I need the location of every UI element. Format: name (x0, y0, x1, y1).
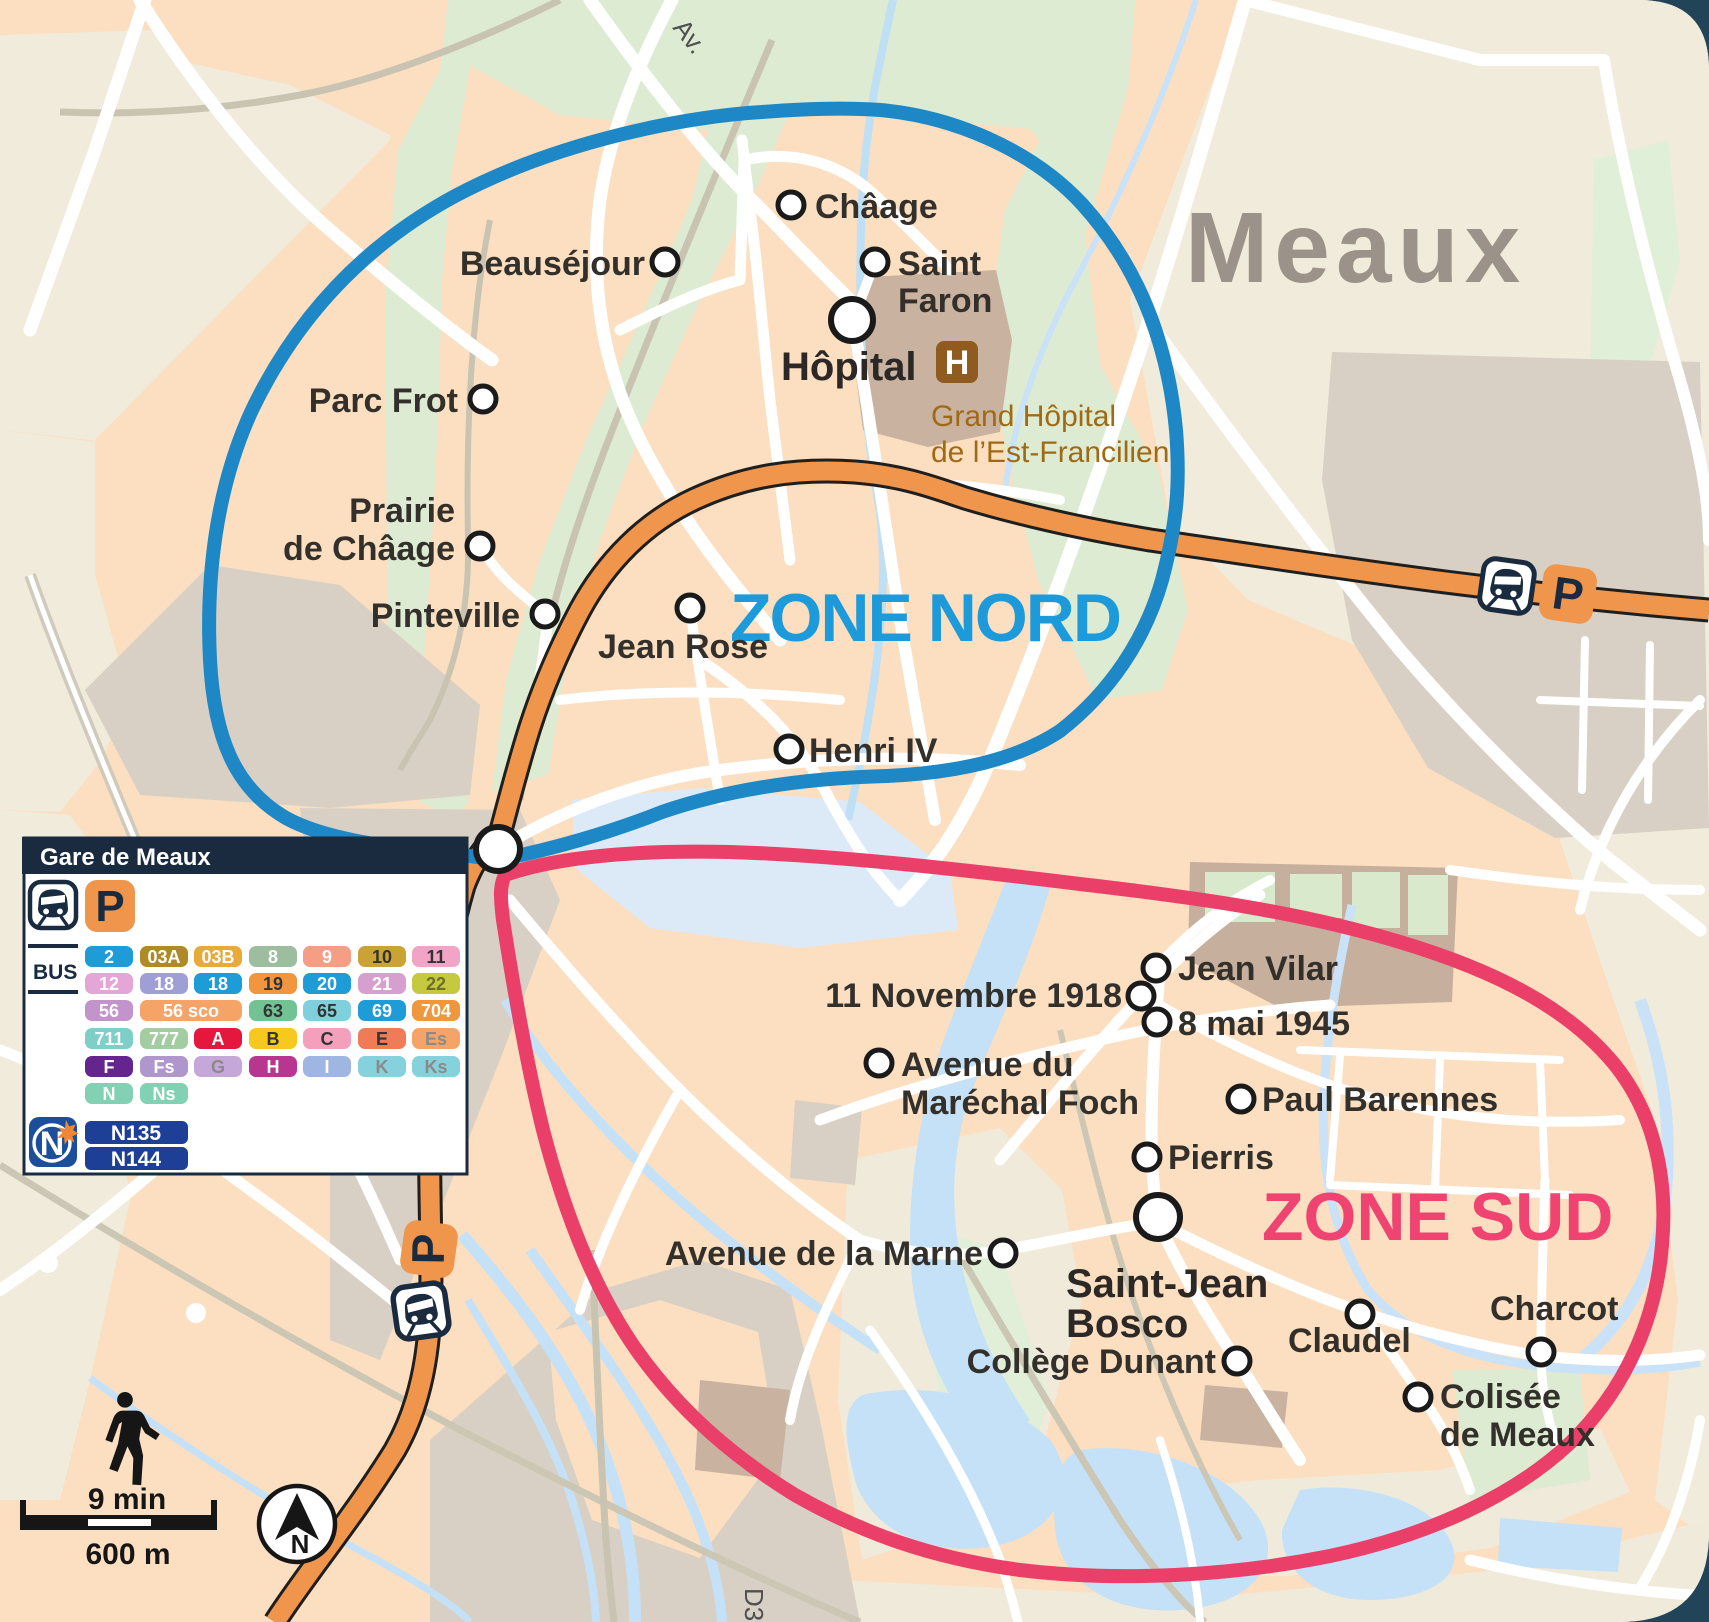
svg-text:Collège Dunant: Collège Dunant (967, 1343, 1216, 1381)
svg-text:Saint-Jean: Saint-Jean (1066, 1262, 1268, 1306)
svg-text:B: B (267, 1029, 280, 1049)
svg-text:de l’Est-Francilien: de l’Est-Francilien (931, 436, 1169, 469)
svg-text:03A: 03A (147, 947, 180, 967)
svg-text:Es: Es (425, 1029, 447, 1049)
svg-text:8: 8 (268, 947, 278, 967)
svg-text:Claudel: Claudel (1288, 1322, 1411, 1360)
svg-text:Paul Barennes: Paul Barennes (1262, 1081, 1498, 1119)
svg-text:N144: N144 (111, 1148, 162, 1171)
svg-text:2: 2 (104, 947, 114, 967)
svg-text:H: H (945, 344, 970, 382)
svg-text:Gare de Meaux: Gare de Meaux (40, 844, 211, 871)
svg-text:N: N (40, 1125, 65, 1163)
svg-text:N135: N135 (111, 1122, 162, 1145)
svg-text:Faron: Faron (898, 282, 992, 320)
svg-text:F: F (104, 1057, 115, 1077)
svg-text:A: A (212, 1029, 225, 1049)
svg-text:18: 18 (154, 974, 174, 994)
svg-text:03B: 03B (201, 947, 234, 967)
svg-text:9 min: 9 min (88, 1483, 166, 1516)
svg-text:19: 19 (263, 974, 283, 994)
svg-text:ZONE SUD: ZONE SUD (1262, 1179, 1613, 1255)
svg-text:Jean Rose: Jean Rose (598, 628, 768, 666)
svg-text:C: C (321, 1029, 334, 1049)
svg-text:11: 11 (426, 947, 445, 967)
svg-text:56: 56 (99, 1001, 119, 1021)
svg-text:D30: D30 (739, 1588, 769, 1622)
svg-text:Châage: Châage (815, 188, 938, 226)
svg-text:H: H (267, 1057, 280, 1077)
svg-text:Saint: Saint (898, 245, 981, 283)
svg-text:Meaux: Meaux (1185, 192, 1526, 304)
svg-text:Colisée: Colisée (1440, 1378, 1561, 1416)
svg-text:21: 21 (372, 974, 392, 994)
svg-text:20: 20 (317, 974, 337, 994)
svg-text:69: 69 (372, 1001, 392, 1021)
svg-text:63: 63 (263, 1001, 283, 1021)
svg-text:18: 18 (208, 974, 228, 994)
svg-text:Beauséjour: Beauséjour (460, 245, 645, 283)
svg-text:Bosco: Bosco (1066, 1302, 1188, 1346)
svg-text:Ns: Ns (152, 1084, 175, 1104)
svg-text:Grand Hôpital: Grand Hôpital (931, 400, 1116, 433)
svg-text:600 m: 600 m (85, 1538, 170, 1571)
svg-text:Hôpital: Hôpital (781, 345, 917, 389)
svg-text:ZONE NORD: ZONE NORD (730, 580, 1120, 656)
svg-text:G: G (211, 1057, 225, 1077)
svg-text:8 mai 1945: 8 mai 1945 (1178, 1005, 1350, 1043)
svg-text:Jean Vilar: Jean Vilar (1178, 950, 1338, 988)
svg-text:Avenue de la Marne: Avenue de la Marne (665, 1235, 983, 1273)
svg-text:P: P (95, 882, 124, 931)
svg-text:Charcot: Charcot (1490, 1290, 1618, 1328)
svg-text:12: 12 (99, 974, 119, 994)
svg-text:de Meaux: de Meaux (1440, 1416, 1595, 1454)
svg-text:711: 711 (94, 1029, 123, 1049)
svg-text:704: 704 (421, 1001, 451, 1021)
svg-text:10: 10 (372, 947, 392, 967)
svg-text:Prairie: Prairie (349, 492, 455, 530)
svg-text:Maréchal Foch: Maréchal Foch (901, 1084, 1139, 1122)
svg-text:65: 65 (317, 1001, 337, 1021)
svg-text:P: P (402, 1233, 455, 1265)
svg-text:de Châage: de Châage (283, 530, 455, 568)
svg-text:BUS: BUS (33, 961, 77, 984)
svg-text:N: N (291, 1529, 310, 1559)
svg-text:Pinteville: Pinteville (371, 597, 520, 635)
svg-text:Pierris: Pierris (1168, 1139, 1274, 1177)
svg-text:Ks: Ks (424, 1057, 447, 1077)
svg-text:Parc Frot: Parc Frot (309, 382, 458, 420)
svg-text:N: N (103, 1084, 116, 1104)
svg-text:I: I (324, 1057, 329, 1077)
svg-text:E: E (376, 1029, 388, 1049)
svg-text:Avenue du: Avenue du (901, 1046, 1074, 1084)
svg-text:K: K (376, 1057, 389, 1077)
svg-text:777: 777 (149, 1029, 179, 1049)
svg-text:9: 9 (322, 947, 332, 967)
svg-text:11 Novembre 1918: 11 Novembre 1918 (825, 977, 1122, 1015)
svg-text:Henri IV: Henri IV (809, 732, 938, 770)
svg-text:22: 22 (426, 974, 446, 994)
svg-text:Fs: Fs (153, 1057, 174, 1077)
svg-text:56 sco: 56 sco (163, 1001, 219, 1021)
